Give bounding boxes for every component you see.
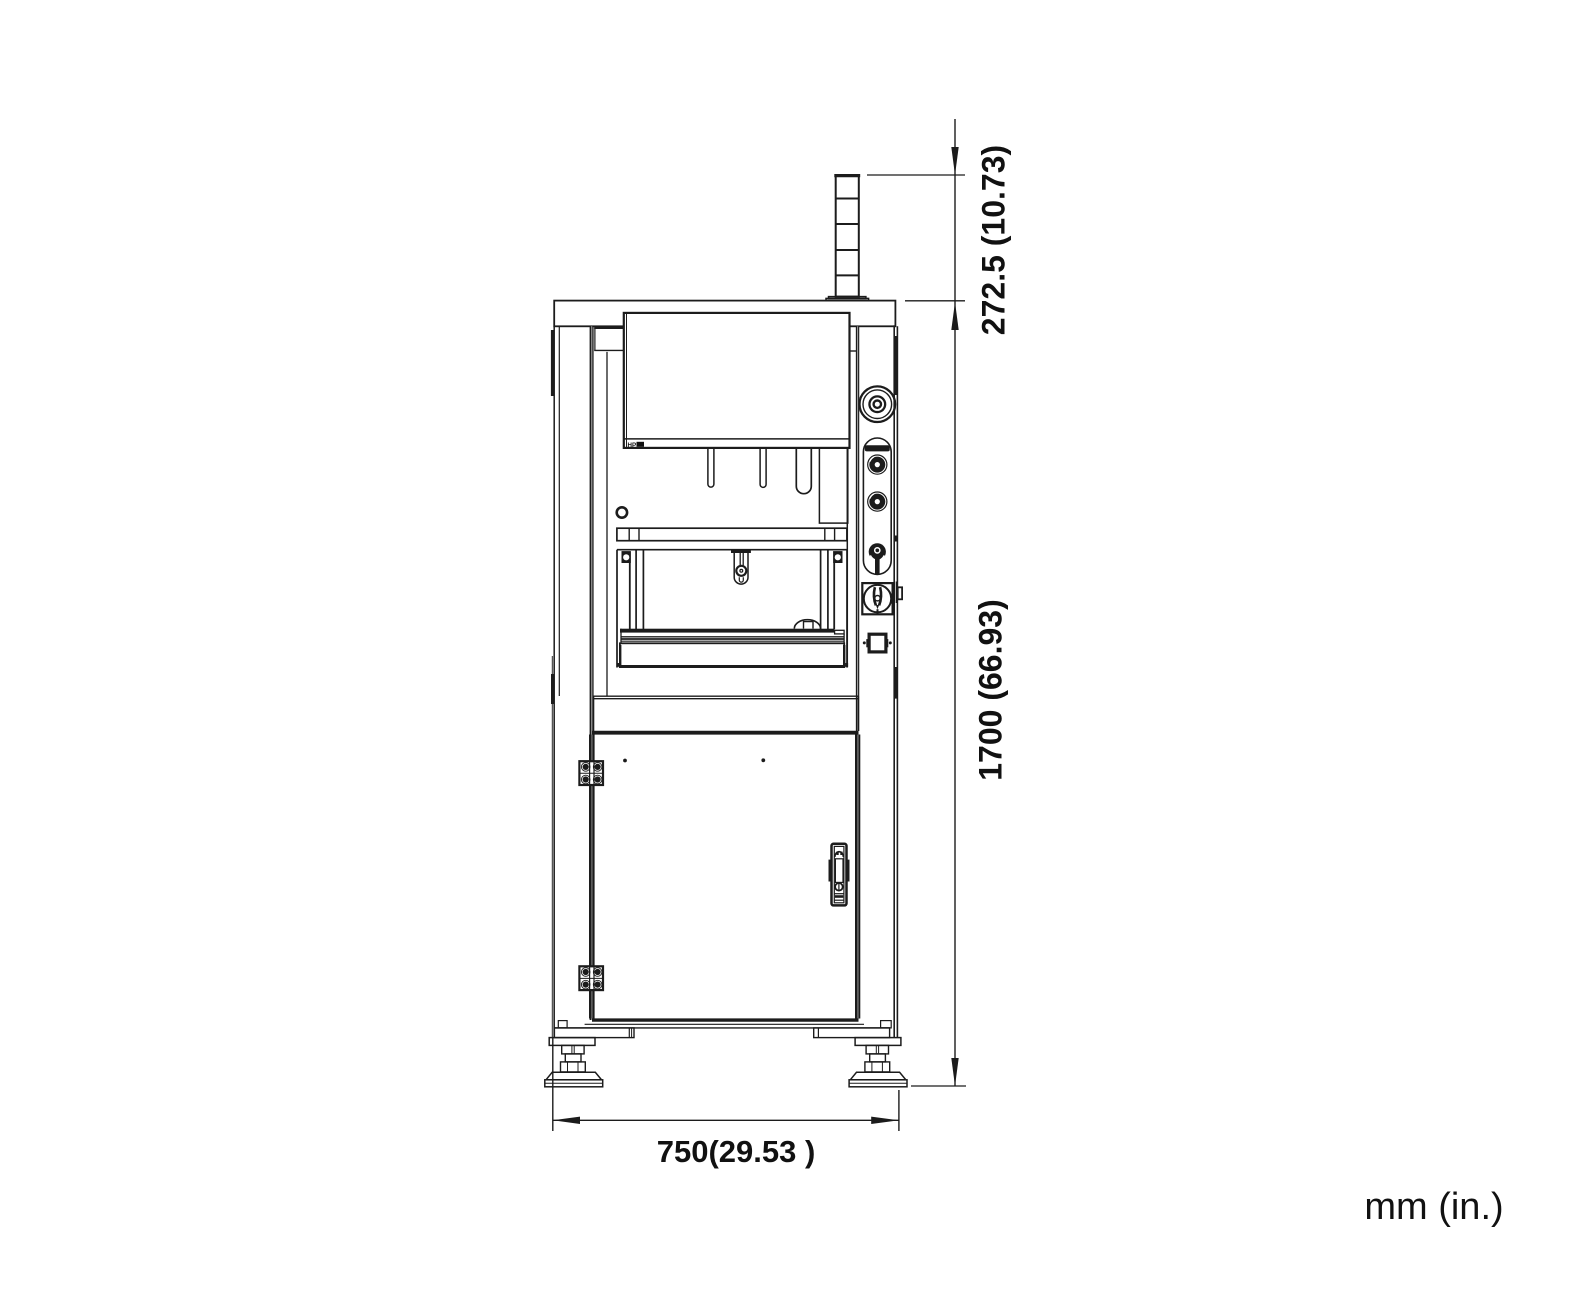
svg-text:HP: HP [628,442,637,449]
svg-text:mm (in.): mm (in.) [1364,1186,1503,1228]
svg-text:272.5 (10.73): 272.5 (10.73) [975,145,1011,335]
svg-text:1700 (66.93): 1700 (66.93) [972,599,1008,780]
svg-text:750(29.53 ): 750(29.53 ) [657,1134,816,1169]
